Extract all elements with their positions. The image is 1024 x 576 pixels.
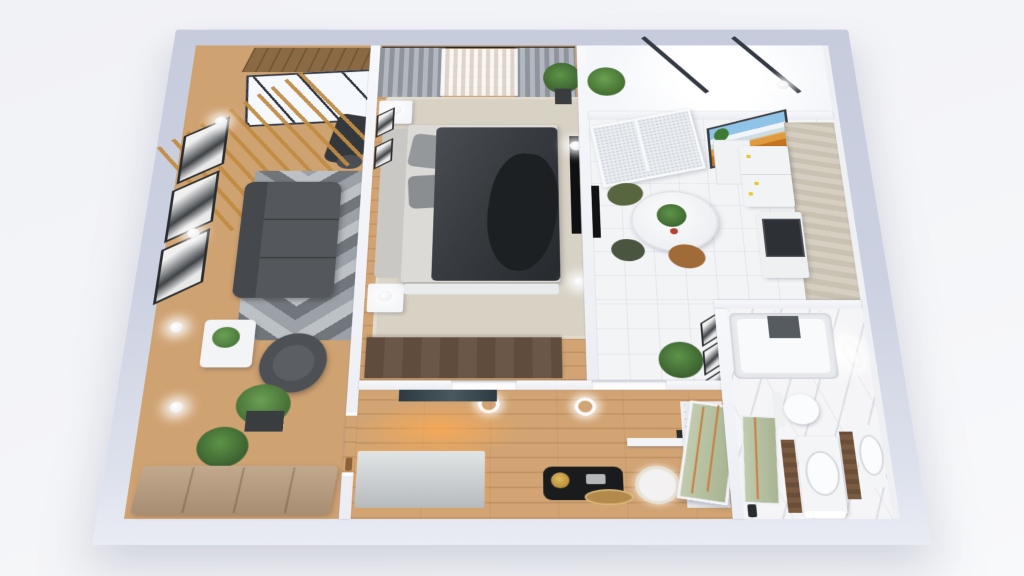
wardrobe bbox=[364, 337, 562, 378]
hall-warm-glow bbox=[355, 401, 519, 457]
balcony-light bbox=[776, 80, 789, 89]
wood-ceiling-strip bbox=[242, 48, 382, 72]
table-plant bbox=[656, 204, 687, 227]
floorplan-render bbox=[0, 0, 1024, 576]
hall-door-opening-2 bbox=[592, 380, 667, 389]
fridge-door-line bbox=[741, 174, 791, 175]
fridge-magnet-3 bbox=[749, 192, 754, 195]
hall-dark-artwork bbox=[399, 390, 497, 402]
oven-front bbox=[762, 219, 805, 257]
sofa-cushion-line-2 bbox=[260, 257, 337, 258]
brass-tray bbox=[584, 489, 634, 505]
fridge-magnet-2 bbox=[754, 182, 759, 185]
bedroom-plant-pot bbox=[555, 89, 572, 105]
wall-kitchen-bathroom bbox=[714, 300, 862, 309]
bed-foot-bench bbox=[404, 284, 559, 295]
hall-door-opening-1 bbox=[451, 380, 517, 389]
apartment-plan bbox=[92, 30, 932, 545]
balcony-plant bbox=[587, 67, 626, 95]
bathroom-accessory bbox=[747, 504, 757, 517]
sheer-curtain bbox=[440, 49, 518, 96]
gold-medallion bbox=[551, 472, 570, 488]
wall-bedroom-hall bbox=[359, 380, 722, 389]
console-decor bbox=[586, 474, 606, 484]
wall-balcony-kitchen bbox=[589, 111, 834, 118]
door-handle-wood bbox=[345, 458, 353, 471]
shower-glass bbox=[741, 415, 781, 505]
plant-box bbox=[244, 411, 284, 432]
sofa-cushion-line-1 bbox=[264, 219, 339, 220]
door-jamb-2 bbox=[342, 472, 354, 475]
hall-sideboard bbox=[354, 451, 485, 508]
curtain-left bbox=[377, 48, 445, 97]
hall-ring-light-2 bbox=[574, 398, 596, 416]
bath-screen bbox=[767, 316, 801, 338]
table-bowl-red bbox=[670, 228, 678, 234]
door-jamb-1 bbox=[346, 412, 358, 415]
bath-mat bbox=[804, 511, 846, 518]
fridge-magnet-1 bbox=[746, 155, 751, 158]
